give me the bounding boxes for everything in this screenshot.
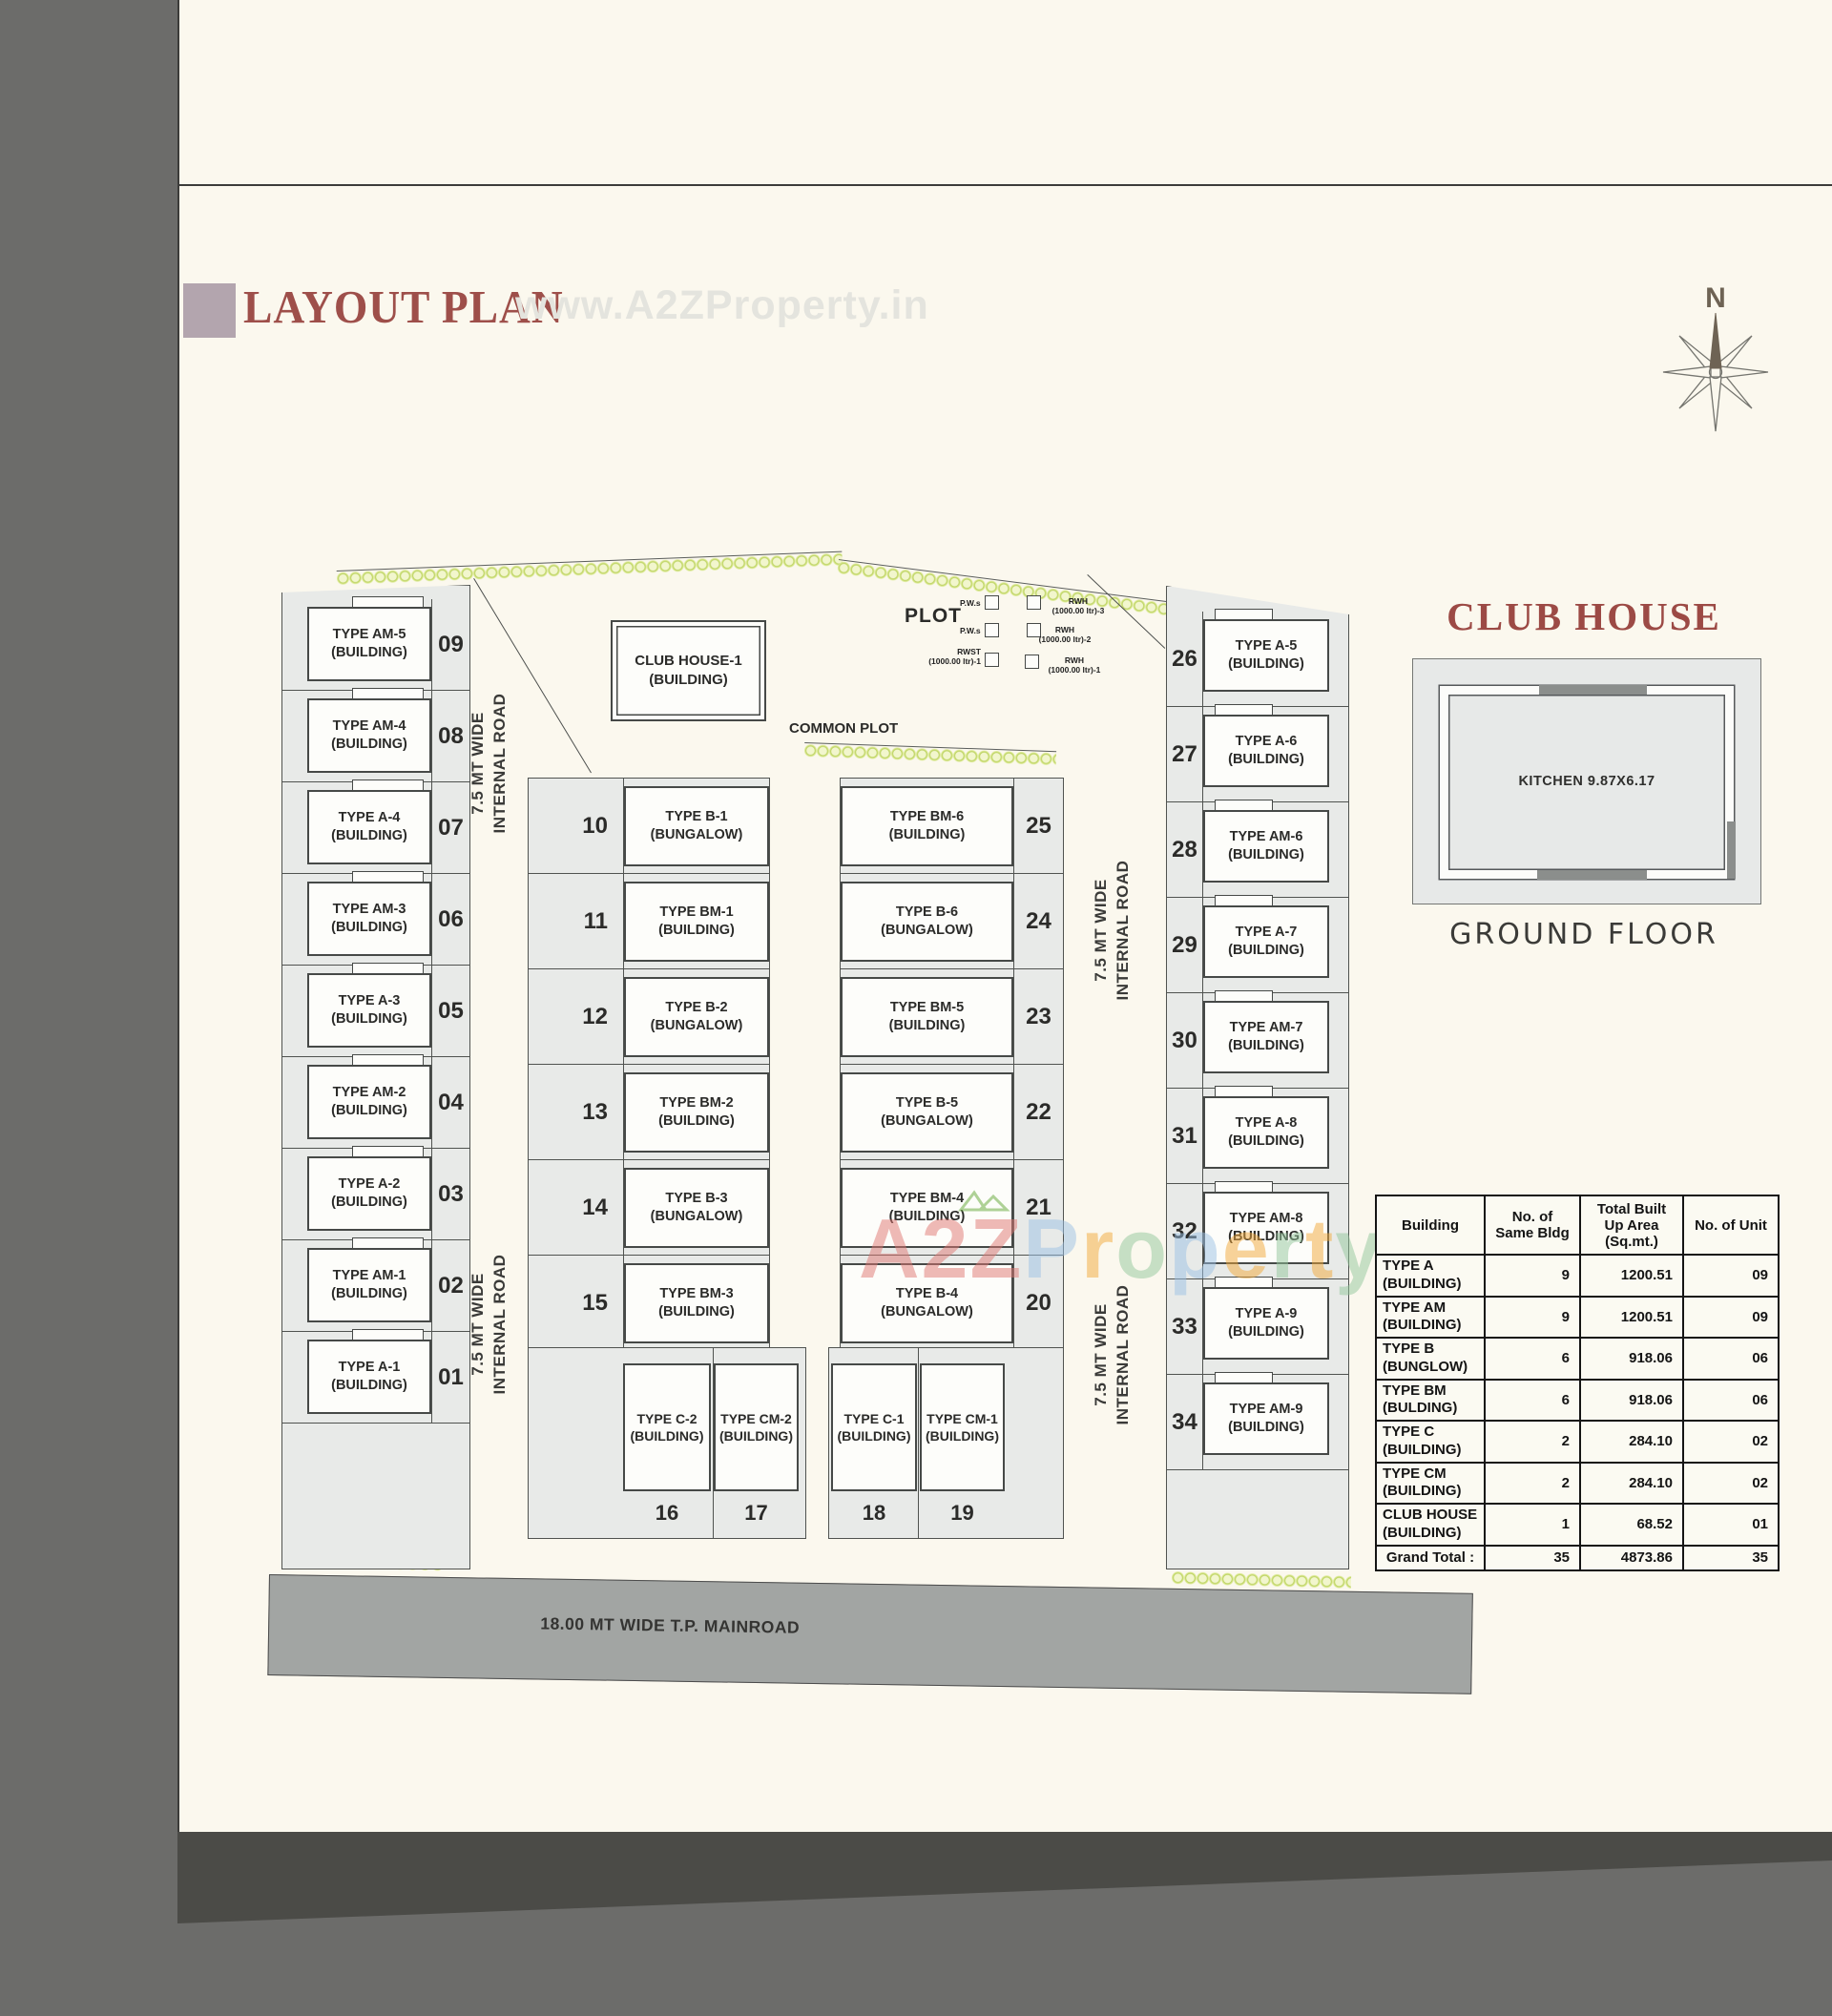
table-row: TYPE B(BUNGLOW)6918.0606: [1376, 1338, 1779, 1380]
building-type: (BUILDING): [1383, 1442, 1478, 1460]
building-type: (BUILDING): [838, 1427, 911, 1444]
building-type: (BUILDING): [331, 1194, 407, 1212]
plot-number: 29: [1167, 898, 1203, 992]
building-type: (BUILDING): [331, 1377, 407, 1395]
plot-number: 04: [431, 1057, 469, 1148]
building-cell: TYPE A-6(BUILDING): [1203, 707, 1348, 801]
table-cell-building: TYPE C(BUILDING): [1376, 1421, 1485, 1463]
watermark-letter: r: [1081, 1201, 1115, 1296]
building-name: TYPE B-5: [896, 1094, 958, 1112]
plot-row: 13TYPE BM-2(BUILDING): [529, 1065, 769, 1160]
watermark-letter: t: [1305, 1201, 1335, 1296]
table-cell-building: TYPE B(BUNGLOW): [1376, 1338, 1485, 1380]
building-name: TYPE AM-5: [333, 626, 406, 644]
main-road-label: 18.00 MT WIDE T.P. MAINROAD: [508, 1613, 832, 1638]
building-type: (BUNGALOW): [651, 826, 743, 844]
table-cell-count: 9: [1485, 1255, 1580, 1297]
building-name: TYPE CM: [1383, 1465, 1478, 1484]
plot-number: 06: [431, 874, 469, 965]
building-cell: TYPE AM-3(BUILDING): [282, 874, 431, 965]
table-cell-units: 06: [1683, 1338, 1779, 1380]
plot-row: TYPE AM-5(BUILDING)09: [282, 599, 469, 691]
table-cell-area: 1200.51: [1580, 1297, 1683, 1339]
plot-row: 10TYPE B-1(BUNGALOW): [529, 779, 769, 874]
building-name: TYPE AM-2: [333, 1084, 406, 1102]
building-type: (BUILDING): [658, 1112, 735, 1131]
building-box: TYPE CM-1(BUILDING): [920, 1363, 1005, 1491]
compass-north-label: N: [1705, 282, 1726, 314]
table-cell-area: 1200.51: [1580, 1255, 1683, 1297]
plot-number: 09: [431, 599, 469, 690]
building-name: TYPE A-1: [339, 1359, 401, 1377]
building-name: TYPE B-1: [665, 808, 727, 826]
building-name: TYPE A: [1383, 1257, 1478, 1276]
plot-number: 03: [431, 1149, 469, 1239]
plot-row: 14TYPE B-3(BUNGALOW): [529, 1160, 769, 1256]
internal-road-line2: INTERNAL ROAD: [489, 1219, 511, 1429]
building-type: (BUNGALOW): [881, 1303, 973, 1321]
building-entry-tab: [352, 1054, 424, 1066]
building-cell: TYPE A-1(BUILDING): [282, 1332, 431, 1423]
plot-row: 12TYPE B-2(BUNGALOW): [529, 969, 769, 1065]
building-entry-tab: [352, 596, 424, 608]
building-name: TYPE AM-3: [333, 901, 406, 919]
building-box: TYPE A-3(BUILDING): [307, 973, 431, 1048]
building-box: TYPE AM-7(BUILDING): [1203, 1001, 1329, 1073]
layout-plan-sheet: LAYOUT PLAN www.A2ZProperty.in N TYPE AM…: [0, 0, 1832, 2016]
building-cell: TYPE A-5(BUILDING): [1203, 612, 1348, 706]
building-type: (BUILDING): [1383, 1317, 1478, 1335]
building-name: TYPE BM-3: [659, 1285, 733, 1303]
building-type: (BUILDING): [1228, 751, 1304, 769]
building-name: TYPE A-3: [339, 992, 401, 1010]
building-name: TYPE BM-1: [659, 904, 733, 922]
building-name: TYPE BM: [1383, 1382, 1478, 1401]
table-cell-units: 02: [1683, 1421, 1779, 1463]
table-cell-building: TYPE BM(BULDING): [1376, 1380, 1485, 1422]
plot-row: TYPE B-5(BUNGALOW)22: [841, 1065, 1063, 1160]
table-cell-units: 09: [1683, 1297, 1779, 1339]
building-box: TYPE A-5(BUILDING): [1203, 619, 1329, 692]
building-name: TYPE AM-1: [333, 1267, 406, 1285]
table-cell-units: 01: [1683, 1504, 1779, 1546]
table-cell-area: 918.06: [1580, 1380, 1683, 1422]
building-box: TYPE BM-2(BUILDING): [624, 1072, 769, 1153]
plot-number: 30: [1167, 993, 1203, 1088]
building-box: TYPE AM-5(BUILDING): [307, 607, 431, 681]
building-type: (BUILDING): [1383, 1276, 1478, 1294]
plot-row: TYPE BM-6(BUILDING)25: [841, 779, 1063, 874]
grand-total-area: 4873.86: [1580, 1546, 1683, 1570]
pws-label-2: P.W.s: [960, 626, 981, 635]
building-box: TYPE A-9(BUILDING): [1203, 1287, 1329, 1360]
plot-row: TYPE B-6(BUNGALOW)24: [841, 874, 1063, 969]
club-house-building-type: (BUILDING): [649, 671, 728, 690]
table-row: TYPE AM(BUILDING)91200.5109: [1376, 1297, 1779, 1339]
building-type: (BUILDING): [331, 1102, 407, 1120]
building-type: (BUILDING): [331, 736, 407, 754]
rwh-label-2: RWH (1000.00 ltr)-2: [1030, 625, 1099, 644]
door-opening-top: [1539, 685, 1647, 695]
plot-number: 08: [431, 691, 469, 781]
building-name: TYPE A-4: [339, 809, 401, 827]
building-type: (BUILDING): [719, 1427, 793, 1444]
building-name: TYPE CM-1: [926, 1410, 998, 1427]
building-name: TYPE A-5: [1236, 637, 1298, 655]
building-cell: TYPE BM-6(BUILDING): [841, 779, 1013, 873]
pws-label-1: P.W.s: [960, 598, 981, 608]
building-name: TYPE BM-2: [659, 1094, 733, 1112]
page-top-border: [177, 184, 1832, 186]
plot-number: 13: [529, 1065, 624, 1159]
rwh-box-3: [1027, 595, 1041, 610]
table-row: TYPE A(BUILDING)91200.5109: [1376, 1255, 1779, 1297]
internal-road-label-right-top: 7.5 MT WIDE INTERNAL ROAD: [1091, 825, 1135, 1035]
watermark-property: Property: [1023, 1201, 1384, 1296]
internal-road-line2: INTERNAL ROAD: [1113, 825, 1135, 1035]
plot-row: TYPE A-3(BUILDING)05: [282, 966, 469, 1057]
plot-row: TYPE AM-1(BUILDING)02: [282, 1240, 469, 1332]
building-box: TYPE C-2(BUILDING): [623, 1363, 711, 1491]
plot-row: 27TYPE A-6(BUILDING): [1167, 707, 1348, 802]
plot-divider: [918, 1348, 919, 1538]
table-cell-units: 09: [1683, 1255, 1779, 1297]
watermark-letter: o: [1115, 1201, 1169, 1296]
plot-row: TYPE BM-5(BUILDING)23: [841, 969, 1063, 1065]
building-name: TYPE B: [1383, 1341, 1478, 1359]
building-name: TYPE A-2: [339, 1175, 401, 1194]
table-row: TYPE C(BUILDING)2284.1002: [1376, 1421, 1779, 1463]
main-road: 18.00 MT WIDE T.P. MAINROAD: [267, 1574, 1473, 1694]
building-cell: TYPE A-8(BUILDING): [1203, 1089, 1348, 1183]
plot-number: 24: [1013, 874, 1063, 968]
building-type: (BUILDING): [926, 1427, 999, 1444]
building-box: TYPE B-2(BUNGALOW): [624, 977, 769, 1057]
internal-road-line1: 7.5 MT WIDE: [468, 1219, 489, 1429]
building-type: (BUILDING): [658, 1303, 735, 1321]
building-type: (BUNGALOW): [881, 1112, 973, 1131]
building-box: TYPE AM-9(BUILDING): [1203, 1382, 1329, 1455]
plot-row: 28TYPE AM-6(BUILDING): [1167, 802, 1348, 898]
ground-floor-label: GROUND FLOOR: [1436, 918, 1732, 951]
rwh-label-1: RWH (1000.00 ltr)-1: [1040, 655, 1109, 675]
building-cell: TYPE B-1(BUNGALOW): [624, 779, 769, 873]
north-compass-icon: N: [1654, 277, 1778, 458]
building-type: (BUILDING): [1228, 1037, 1304, 1055]
watermark-mountain-icon: [957, 1189, 1010, 1212]
title-accent-square: [183, 283, 236, 338]
plot-row: 34TYPE AM-9(BUILDING): [1167, 1375, 1348, 1470]
plot-number: 19: [920, 1501, 1005, 1526]
plot-row: TYPE AM-3(BUILDING)06: [282, 874, 469, 966]
building-name: TYPE BM-5: [890, 999, 964, 1017]
rwh-label-3: RWH (1000.00 ltr)-3: [1044, 596, 1113, 615]
watermark-center: A2ZProperty: [859, 1200, 1384, 1298]
rwh-box-1: [1025, 655, 1039, 669]
building-box: TYPE CM-2(BUILDING): [714, 1363, 799, 1491]
plot-number: 01: [431, 1332, 469, 1423]
table-total-row: Grand Total :354873.8635: [1376, 1546, 1779, 1570]
plot-number: 02: [431, 1240, 469, 1331]
building-name: TYPE AM-9: [1230, 1401, 1303, 1419]
building-name: TYPE C: [1383, 1424, 1478, 1442]
building-cell: TYPE BM-5(BUILDING): [841, 969, 1013, 1064]
building-type: (BULDING): [1383, 1400, 1478, 1418]
building-statistics-table: BuildingNo. of Same BldgTotal Built Up A…: [1375, 1195, 1780, 1571]
pws-box-1: [985, 595, 999, 610]
internal-road-line1: 7.5 MT WIDE: [1091, 825, 1113, 1035]
building-box: TYPE B-5(BUNGALOW): [841, 1072, 1013, 1153]
building-cell: TYPE AM-4(BUILDING): [282, 691, 431, 781]
building-name: TYPE AM-4: [333, 717, 406, 736]
table-header: Total Built Up Area (Sq.mt.): [1580, 1195, 1683, 1255]
building-cell: TYPE A-7(BUILDING): [1203, 898, 1348, 992]
plot-strip-bottom-right: TYPE C-1(BUILDING)18TYPE CM-1(BUILDING)1…: [828, 1347, 1064, 1539]
building-name: TYPE AM-7: [1230, 1019, 1303, 1037]
building-box: TYPE BM-5(BUILDING): [841, 977, 1013, 1057]
grand-total-label: Grand Total :: [1376, 1546, 1485, 1570]
plot-number: 07: [431, 782, 469, 873]
building-box: TYPE A-4(BUILDING): [307, 790, 431, 864]
rwst-label: RWST (1000.00 ltr)-1: [918, 647, 981, 666]
building-type: (BUILDING): [631, 1427, 704, 1444]
club-house-detail-title: CLUB HOUSE: [1436, 593, 1732, 639]
building-type: (BUNGALOW): [651, 1208, 743, 1226]
building-name: CLUB HOUSE: [1383, 1507, 1478, 1525]
table-cell-area: 918.06: [1580, 1338, 1683, 1380]
building-name: TYPE AM: [1383, 1299, 1478, 1318]
building-entry-tab: [1215, 1086, 1273, 1097]
watermark-letter: r: [1271, 1201, 1305, 1296]
plot-strip-left: TYPE AM-5(BUILDING)09TYPE AM-4(BUILDING)…: [281, 585, 470, 1569]
plot-number: 25: [1013, 779, 1063, 873]
internal-road-line1: 7.5 MT WIDE: [468, 658, 489, 868]
building-cell: TYPE AM-6(BUILDING): [1203, 802, 1348, 897]
building-cell: TYPE A-3(BUILDING): [282, 966, 431, 1056]
plot-row: 26TYPE A-5(BUILDING): [1167, 612, 1348, 707]
building-box: TYPE C-1(BUILDING): [831, 1363, 917, 1491]
building-box: TYPE A-2(BUILDING): [307, 1156, 431, 1231]
building-box: TYPE AM-3(BUILDING): [307, 882, 431, 956]
plot-number: 14: [529, 1160, 624, 1255]
plot-row: TYPE A-4(BUILDING)07: [282, 782, 469, 874]
building-cell: TYPE BM-3(BUILDING): [624, 1256, 769, 1350]
grand-total-count: 35: [1485, 1546, 1580, 1570]
watermark-url: www.A2ZProperty.in: [515, 282, 929, 329]
table-cell-units: 06: [1683, 1380, 1779, 1422]
building-box: TYPE BM-1(BUILDING): [624, 882, 769, 962]
plot-number: 15: [529, 1256, 624, 1350]
building-entry-tab: [352, 1146, 424, 1157]
plot-row: 30TYPE AM-7(BUILDING): [1167, 993, 1348, 1089]
internal-road-label-left-bottom: 7.5 MT WIDE INTERNAL ROAD: [468, 1219, 511, 1429]
watermark-letter: p: [1169, 1201, 1222, 1296]
table-cell-building: TYPE A(BUILDING): [1376, 1255, 1485, 1297]
building-name: TYPE A-6: [1236, 733, 1298, 751]
building-type: (BUILDING): [331, 1285, 407, 1303]
building-name: TYPE B-3: [665, 1190, 727, 1208]
building-entry-tab: [352, 871, 424, 883]
building-entry-tab: [352, 1329, 424, 1341]
building-cell: TYPE BM-2(BUILDING): [624, 1065, 769, 1159]
internal-road-line2: INTERNAL ROAD: [489, 658, 511, 868]
building-name: TYPE CM-2: [720, 1410, 792, 1427]
plot-row: TYPE A-1(BUILDING)01: [282, 1332, 469, 1424]
building-type: (BUILDING): [889, 826, 966, 844]
plot-number: 12: [529, 969, 624, 1064]
building-type: (BUILDING): [1228, 1419, 1304, 1437]
table-cell-count: 6: [1485, 1338, 1580, 1380]
building-name: TYPE B-6: [896, 904, 958, 922]
building-box: TYPE B-3(BUNGALOW): [624, 1168, 769, 1248]
table-cell-count: 2: [1485, 1463, 1580, 1505]
building-type: (BUNGALOW): [881, 922, 973, 940]
building-name: TYPE AM-6: [1230, 828, 1303, 846]
building-box: TYPE A-7(BUILDING): [1203, 905, 1329, 978]
building-box: TYPE B-6(BUNGALOW): [841, 882, 1013, 962]
plot-row: 11TYPE BM-1(BUILDING): [529, 874, 769, 969]
plot-number: 10: [529, 779, 624, 873]
plot-row: 15TYPE BM-3(BUILDING): [529, 1256, 769, 1351]
plot-number: 11: [529, 874, 624, 968]
building-entry-tab: [1215, 704, 1273, 716]
building-name: TYPE B-2: [665, 999, 727, 1017]
building-cell: TYPE B-5(BUNGALOW): [841, 1065, 1013, 1159]
building-type: (BUILDING): [331, 644, 407, 662]
building-cell: TYPE AM-2(BUILDING): [282, 1057, 431, 1148]
building-name: TYPE C-2: [636, 1410, 697, 1427]
door-opening-right: [1727, 821, 1736, 879]
door-opening-bottom: [1537, 870, 1647, 880]
plot-number: 31: [1167, 1089, 1203, 1183]
table-row: TYPE CM(BUILDING)2284.1002: [1376, 1463, 1779, 1505]
building-box: TYPE AM-6(BUILDING): [1203, 810, 1329, 883]
building-name: TYPE C-1: [843, 1410, 904, 1427]
common-plot-label: COMMON PLOT: [789, 720, 898, 737]
table-row: CLUB HOUSE(BUILDING)168.5201: [1376, 1504, 1779, 1546]
plot-number: 05: [431, 966, 469, 1056]
table-row: TYPE BM(BULDING)6918.0606: [1376, 1380, 1779, 1422]
building-cell: TYPE A-4(BUILDING): [282, 782, 431, 873]
building-entry-tab: [1215, 990, 1273, 1002]
building-box: TYPE A-1(BUILDING): [307, 1340, 431, 1414]
pws-box-2: [985, 623, 999, 637]
building-type: (BUILDING): [1228, 1133, 1304, 1151]
building-type: (BUILDING): [1383, 1525, 1478, 1543]
building-box: TYPE AM-2(BUILDING): [307, 1065, 431, 1139]
table-header: No. of Unit: [1683, 1195, 1779, 1255]
building-entry-tab: [1215, 800, 1273, 811]
table-cell-area: 284.10: [1580, 1421, 1683, 1463]
building-type: (BUILDING): [1228, 1323, 1304, 1341]
building-cell: TYPE AM-7(BUILDING): [1203, 993, 1348, 1088]
plot-number: 18: [831, 1501, 917, 1526]
table-cell-area: 68.52: [1580, 1504, 1683, 1546]
building-type: (BUILDING): [1228, 942, 1304, 960]
building-name: TYPE A-8: [1236, 1114, 1298, 1133]
building-cell: TYPE A-2(BUILDING): [282, 1149, 431, 1239]
table-cell-count: 2: [1485, 1421, 1580, 1463]
plot-number: 17: [714, 1501, 799, 1526]
plot-number: 26: [1167, 612, 1203, 706]
building-type: (BUILDING): [889, 1017, 966, 1035]
table-cell-building: TYPE AM(BUILDING): [1376, 1297, 1485, 1339]
building-entry-tab: [352, 963, 424, 974]
building-type: (BUNGLOW): [1383, 1359, 1478, 1377]
building-cell: TYPE B-2(BUNGALOW): [624, 969, 769, 1064]
page-shadow: [177, 1832, 1832, 1927]
building-box: TYPE A-8(BUILDING): [1203, 1096, 1329, 1169]
table-cell-count: 9: [1485, 1297, 1580, 1339]
grand-total-units: 35: [1683, 1546, 1779, 1570]
club-house-building-name: CLUB HOUSE-1: [635, 652, 742, 671]
building-cell: TYPE AM-9(BUILDING): [1203, 1375, 1348, 1469]
building-box: TYPE BM-6(BUILDING): [841, 786, 1013, 866]
building-entry-tab: [1215, 895, 1273, 906]
building-name: TYPE A-7: [1236, 924, 1298, 942]
kitchen-label: KITCHEN 9.87X6.17: [1413, 774, 1760, 789]
table-header: No. of Same Bldg: [1485, 1195, 1580, 1255]
building-box: TYPE AM-4(BUILDING): [307, 698, 431, 773]
plot-number: 22: [1013, 1065, 1063, 1159]
building-type: (BUNGALOW): [651, 1017, 743, 1035]
plot-strip-center-left: 10TYPE B-1(BUNGALOW)11TYPE BM-1(BUILDING…: [528, 778, 770, 1351]
watermark-letter: e: [1222, 1201, 1271, 1296]
plot-row: TYPE A-2(BUILDING)03: [282, 1149, 469, 1240]
internal-road-label-left-top: 7.5 MT WIDE INTERNAL ROAD: [468, 658, 511, 868]
plot-number: 34: [1167, 1375, 1203, 1469]
plot-row: TYPE AM-4(BUILDING)08: [282, 691, 469, 782]
building-entry-tab: [1215, 609, 1273, 620]
club-house-floor-plan: KITCHEN 9.87X6.17: [1412, 658, 1761, 904]
building-entry-tab: [352, 1237, 424, 1249]
building-box: TYPE AM-1(BUILDING): [307, 1248, 431, 1322]
plot-strip-right: 26TYPE A-5(BUILDING)27TYPE A-6(BUILDING)…: [1166, 586, 1349, 1569]
building-entry-tab: [352, 688, 424, 699]
plot-label: PLOT: [905, 605, 962, 628]
building-type: (BUILDING): [1228, 846, 1304, 864]
building-cell: TYPE B-6(BUNGALOW): [841, 874, 1013, 968]
building-entry-tab: [1215, 1181, 1273, 1193]
plot-number: 28: [1167, 802, 1203, 897]
building-box: TYPE B-1(BUNGALOW): [624, 786, 769, 866]
building-type: (BUILDING): [1383, 1483, 1478, 1501]
table-cell-building: CLUB HOUSE(BUILDING): [1376, 1504, 1485, 1546]
building-box: TYPE BM-3(BUILDING): [624, 1263, 769, 1343]
watermark-letter: P: [1023, 1201, 1081, 1296]
table-header: Building: [1376, 1195, 1485, 1255]
building-type: (BUILDING): [658, 922, 735, 940]
building-name: TYPE A-9: [1236, 1305, 1298, 1323]
plot-number: 23: [1013, 969, 1063, 1064]
building-name: TYPE BM-6: [890, 808, 964, 826]
table-cell-units: 02: [1683, 1463, 1779, 1505]
building-cell: TYPE B-3(BUNGALOW): [624, 1160, 769, 1255]
building-cell: TYPE AM-1(BUILDING): [282, 1240, 431, 1331]
rwst-box: [985, 653, 999, 667]
building-entry-tab: [1215, 1372, 1273, 1383]
table-cell-count: 6: [1485, 1380, 1580, 1422]
plot-row: TYPE AM-2(BUILDING)04: [282, 1057, 469, 1149]
building-type: (BUILDING): [331, 919, 407, 937]
building-entry-tab: [352, 779, 424, 791]
plot-row: 31TYPE A-8(BUILDING): [1167, 1089, 1348, 1184]
watermark-a2z: A2Z: [859, 1201, 1023, 1296]
building-type: (BUILDING): [1228, 655, 1304, 674]
table-cell-building: TYPE CM(BUILDING): [1376, 1463, 1485, 1505]
table-cell-area: 284.10: [1580, 1463, 1683, 1505]
plot-strip-bottom-left: TYPE C-2(BUILDING)16TYPE CM-2(BUILDING)1…: [528, 1347, 806, 1539]
